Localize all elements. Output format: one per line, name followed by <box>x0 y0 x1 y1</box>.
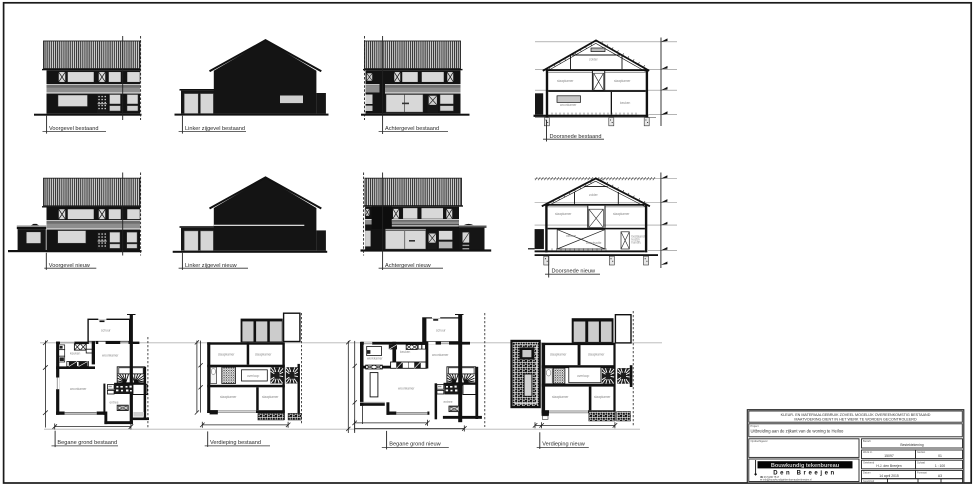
svg-text:1 : 100: 1 : 100 <box>935 464 945 468</box>
svg-text:Linker zijgevel bestaand: Linker zijgevel bestaand <box>185 126 245 132</box>
svg-text:Uitbreiding aan de zijkant van: Uitbreiding aan de zijkant van de woning… <box>751 429 845 434</box>
svg-text:A3: A3 <box>938 474 942 478</box>
svg-text:Verdieping nieuw: Verdieping nieuw <box>542 442 586 448</box>
svg-text:Doorsnede nieuw: Doorsnede nieuw <box>552 269 596 275</box>
svg-text:keuken: keuken <box>400 350 411 354</box>
svg-text:Den Breejen: Den Breejen <box>773 470 837 476</box>
svg-text:slaapkamer: slaapkamer <box>614 79 631 83</box>
svg-text:woonkamer: woonkamer <box>560 103 577 107</box>
svg-text:woonkamer: woonkamer <box>398 386 415 390</box>
svg-text:Begane grond bestaand: Begane grond bestaand <box>57 440 117 446</box>
svg-text:woonkamer: woonkamer <box>102 354 119 358</box>
svg-text:handh.: handh. <box>632 241 642 245</box>
svg-text:slaapkamer: slaapkamer <box>555 212 572 216</box>
svg-text:Werk nr.: Werk nr. <box>863 450 873 454</box>
svg-text:keuken: keuken <box>620 101 631 105</box>
svg-text:KLEUR- EN MATERIAALGEBRUIK ZOV: KLEUR- EN MATERIAALGEBRUIK ZOVEEL MOGELI… <box>781 413 931 417</box>
svg-text:Voorgevel bestaand: Voorgevel bestaand <box>49 126 98 132</box>
svg-text:zolder: zolder <box>589 58 599 62</box>
svg-text:Bouwkundig tekenbureau: Bouwkundig tekenbureau <box>771 463 840 469</box>
svg-text:Formaat: Formaat <box>917 471 927 475</box>
svg-text:slaapkamer: slaapkamer <box>557 79 574 83</box>
svg-text:Bestektekening: Bestektekening <box>900 443 923 447</box>
svg-text:nieuwe: nieuwe <box>566 234 576 238</box>
svg-text:✉ info@bouwkundigtekenbureaud: ✉ info@bouwkundigtekenbureaudenbreejen.n… <box>760 479 812 482</box>
svg-text:15097: 15097 <box>884 454 894 458</box>
svg-text:slaapkamer: slaapkamer <box>550 353 567 357</box>
svg-text:schuur: schuur <box>436 329 447 333</box>
svg-text:H.J. den Breejen: H.J. den Breejen <box>876 464 901 468</box>
svg-text:slaapkamer: slaapkamer <box>218 352 235 356</box>
svg-text:zolder: zolder <box>589 193 599 197</box>
svg-text:Datum: Datum <box>863 471 871 475</box>
svg-text:Project: Project <box>751 424 759 428</box>
svg-text:slaapkamer: slaapkamer <box>262 395 279 399</box>
svg-text:Begane grond nieuw: Begane grond nieuw <box>389 442 441 448</box>
svg-text:Opdrachtgever: Opdrachtgever <box>751 439 768 443</box>
svg-text:Achtergevel bestaand: Achtergevel bestaand <box>385 126 439 132</box>
svg-text:slaapkamer: slaapkamer <box>588 353 605 357</box>
svg-text:werkkamer: werkkamer <box>367 356 384 360</box>
svg-text:entree: entree <box>110 401 119 405</box>
svg-text:slaapkamer: slaapkamer <box>552 395 569 399</box>
svg-text:woonkamer: woonkamer <box>432 353 449 357</box>
svg-text:Getekend: Getekend <box>863 460 875 464</box>
svg-text:keuken: keuken <box>70 352 81 356</box>
svg-text:Verdieping bestaand: Verdieping bestaand <box>210 440 261 446</box>
svg-text:14 april 2015: 14 april 2015 <box>879 474 899 478</box>
svg-text:slaapkamer: slaapkamer <box>594 395 611 399</box>
svg-text:constructie: constructie <box>586 241 602 245</box>
svg-text:woonkamer: woonkamer <box>70 387 87 391</box>
svg-text:slaapkamer: slaapkamer <box>220 395 237 399</box>
svg-text:Gewijzigd: Gewijzigd <box>863 479 875 483</box>
svg-text:Schaal: Schaal <box>917 460 925 464</box>
svg-text:01: 01 <box>938 454 942 458</box>
svg-text:overloop: overloop <box>247 374 259 378</box>
svg-text:schuur: schuur <box>101 329 112 333</box>
svg-text:slaapkamer: slaapkamer <box>613 212 630 216</box>
svg-text:slaapkamer: slaapkamer <box>255 352 272 356</box>
svg-text:Gezien: Gezien <box>917 450 926 454</box>
svg-text:Betreft: Betreft <box>863 439 871 443</box>
svg-text:MAATVOERING DIENT IN HET WERK: MAATVOERING DIENT IN HET WERK TE WORDEN … <box>794 418 917 422</box>
svg-text:overloop: overloop <box>577 374 589 378</box>
svg-text:entree: entree <box>444 400 453 404</box>
